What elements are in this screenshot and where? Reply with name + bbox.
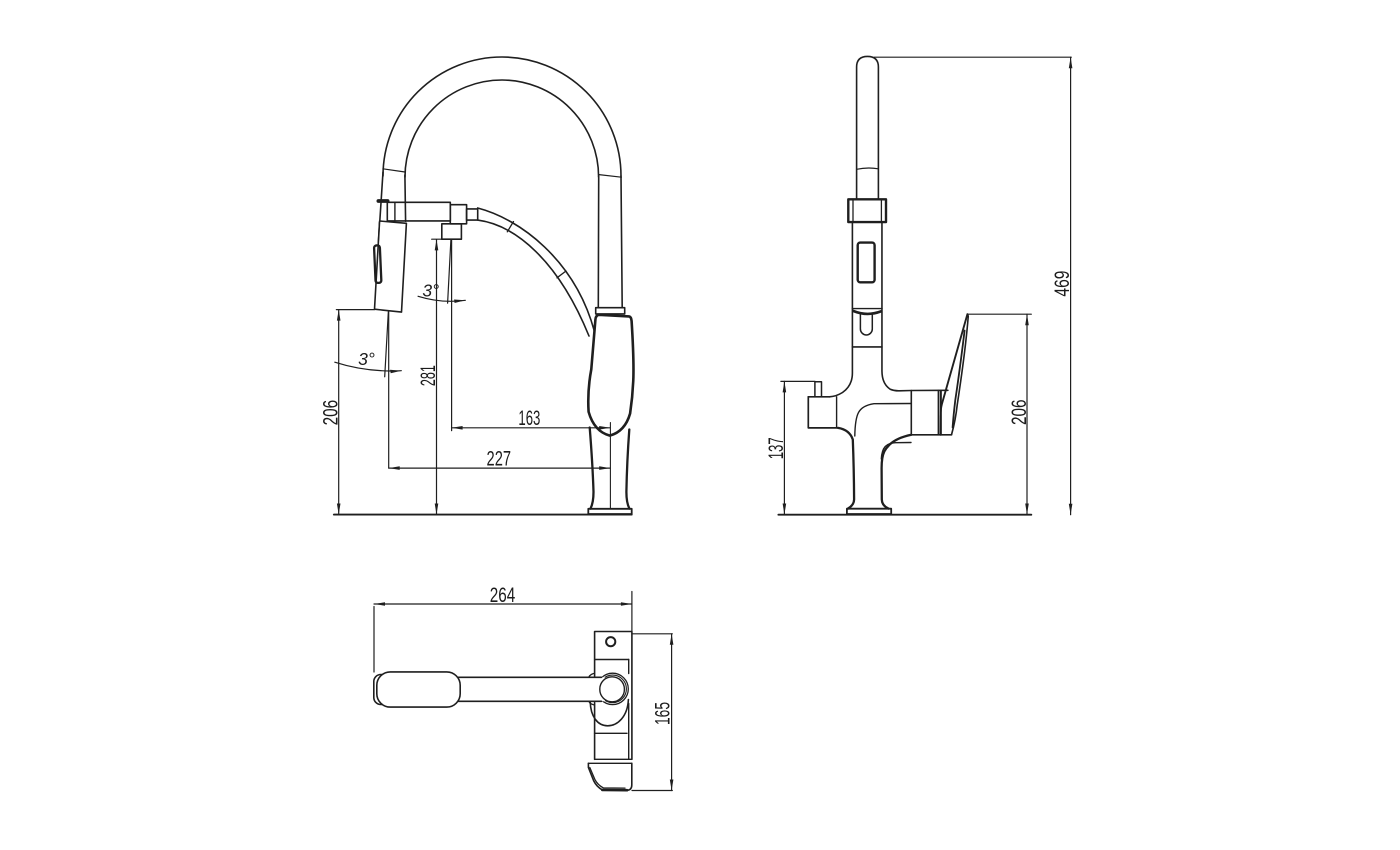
- svg-text:227: 227: [487, 446, 512, 470]
- svg-text:281: 281: [416, 365, 440, 386]
- svg-text:206: 206: [1007, 400, 1031, 426]
- svg-text:3°: 3°: [358, 349, 375, 369]
- svg-text:206: 206: [318, 400, 342, 426]
- svg-text:163: 163: [518, 406, 540, 430]
- svg-text:469: 469: [1050, 271, 1074, 297]
- svg-text:137: 137: [764, 437, 788, 459]
- svg-text:165: 165: [651, 702, 675, 725]
- svg-text:264: 264: [490, 583, 516, 607]
